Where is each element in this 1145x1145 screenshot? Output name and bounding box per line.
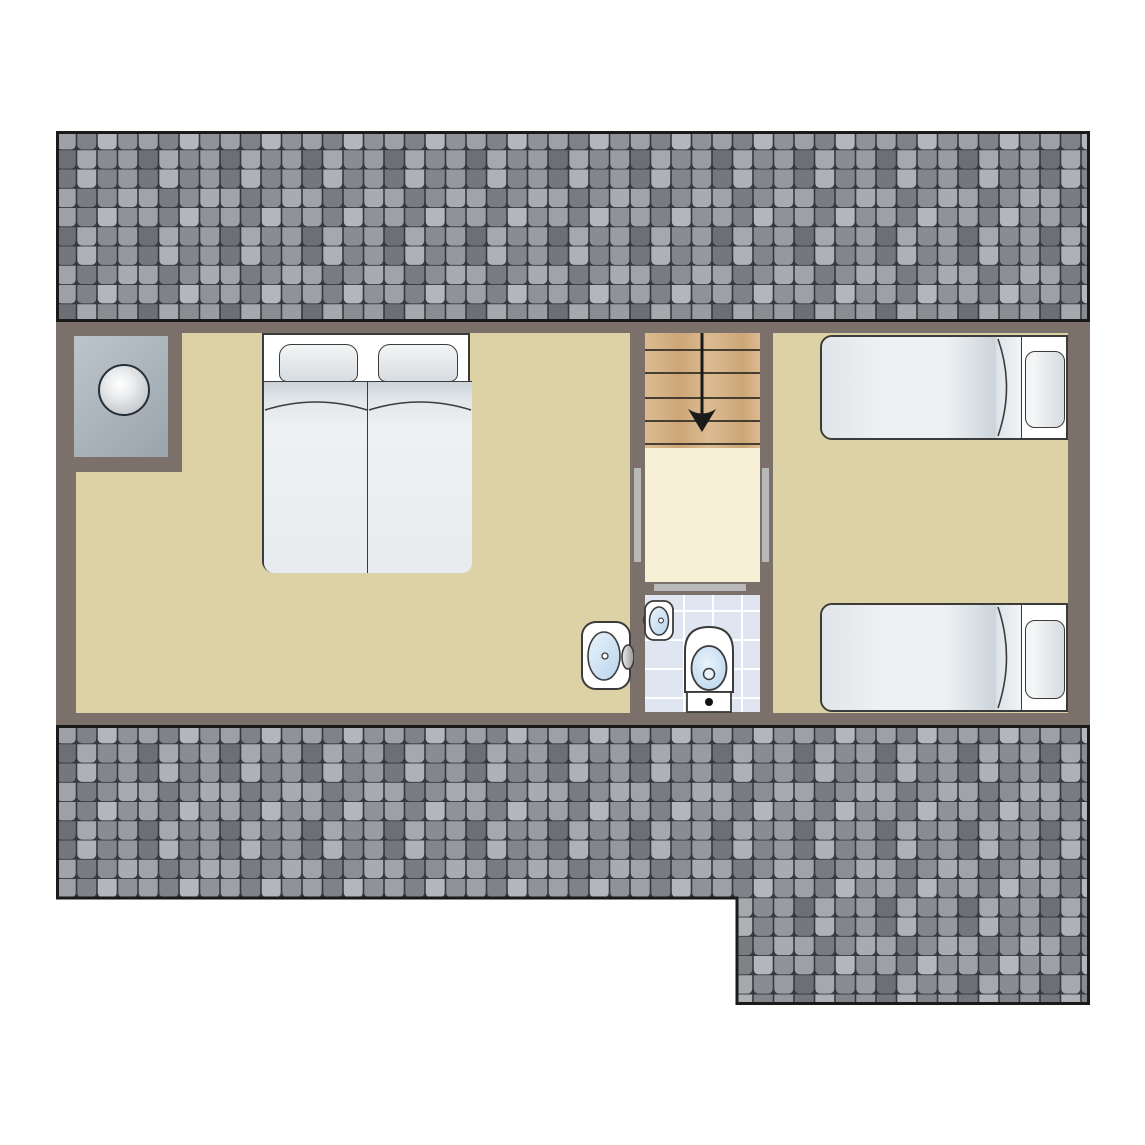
pillow	[279, 344, 358, 382]
stair-tread	[645, 397, 760, 399]
stair-tread	[645, 349, 760, 351]
toilet	[682, 624, 738, 716]
pillow	[1025, 620, 1065, 699]
pillow	[1025, 351, 1065, 428]
roof-lower	[56, 725, 1090, 1007]
roof-upper	[56, 131, 1090, 322]
door-right-bedroom	[762, 468, 769, 562]
mattress	[368, 381, 472, 573]
tile-grout	[741, 595, 743, 712]
bedroom-left-floor-extension	[76, 472, 182, 713]
flush-button-icon	[705, 698, 713, 706]
chimney-block	[74, 336, 168, 457]
stair-tread	[645, 443, 760, 445]
stair-tread	[645, 372, 760, 374]
door-bathroom	[654, 584, 746, 591]
chimney-flue-icon	[98, 364, 150, 416]
staircase	[645, 333, 760, 448]
mattress	[264, 381, 368, 573]
mattress	[822, 337, 1022, 438]
faucet-icon	[622, 645, 634, 669]
stair-tread	[645, 420, 760, 422]
stair-landing	[645, 448, 760, 582]
pillow	[378, 344, 458, 382]
bathroom-sink	[642, 597, 678, 644]
floor-plan	[0, 0, 1145, 1145]
door-left-bedroom	[634, 468, 641, 562]
double-bed	[262, 333, 470, 573]
mattress	[822, 605, 1022, 710]
washbasin	[578, 618, 634, 694]
single-bed-top	[820, 335, 1068, 440]
single-bed-bottom	[820, 603, 1068, 712]
